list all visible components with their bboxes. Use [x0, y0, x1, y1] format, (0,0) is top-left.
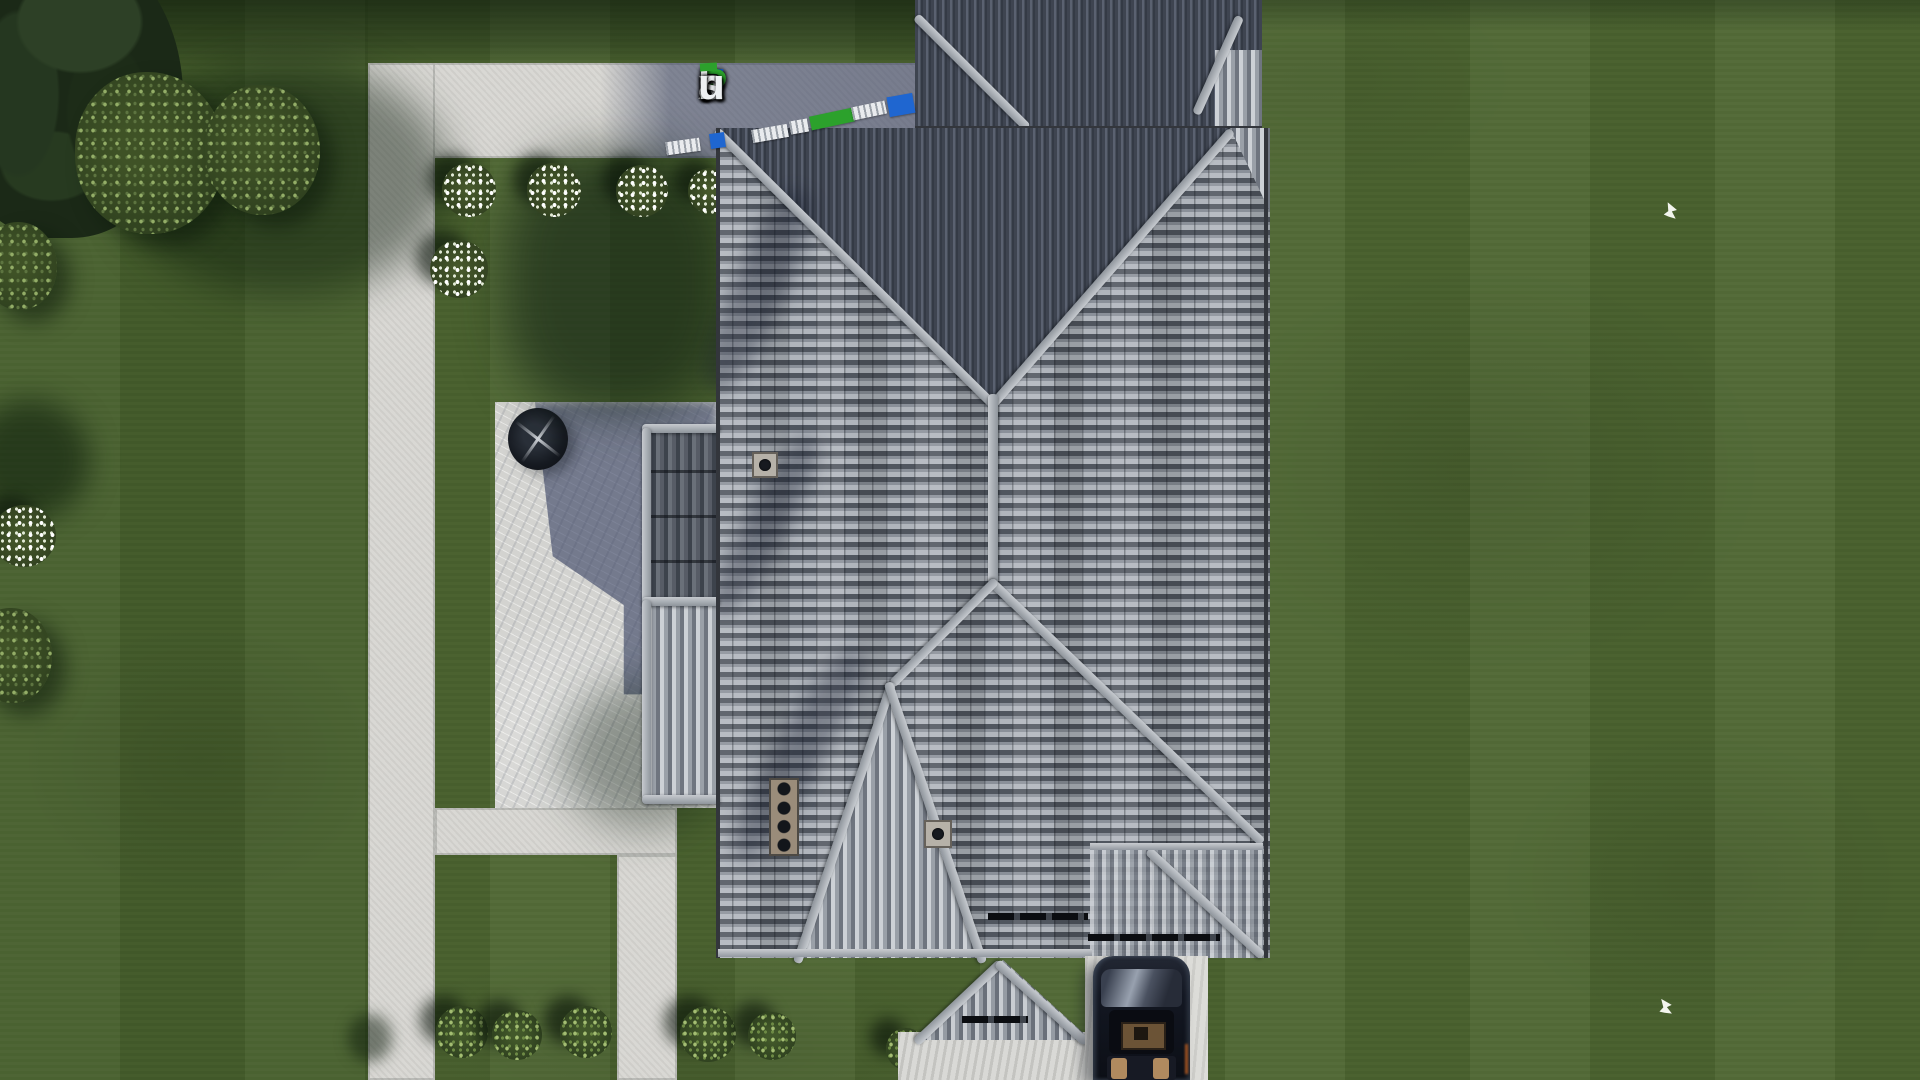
left-wing-ridge [642, 424, 720, 433]
aerial-render: FixPlans.ru [0, 0, 1920, 1080]
garage-roof-tier [1090, 847, 1263, 958]
roof-vent-strip [1088, 934, 1220, 941]
roof-vent-strip [988, 913, 1088, 920]
garage-eave [1090, 843, 1263, 850]
bay-step [648, 560, 718, 563]
car-seat [1153, 1058, 1169, 1079]
green-bush [680, 1006, 736, 1062]
left-wing-ridge [642, 428, 651, 603]
green-bush [560, 1006, 612, 1058]
roof-vent [752, 452, 778, 478]
flower-bush [430, 240, 488, 298]
left-wing-eave [642, 795, 720, 804]
green-bush [492, 1010, 542, 1060]
logo-f-accent [700, 63, 717, 72]
green-bush [748, 1012, 796, 1060]
walkway-leg [617, 855, 677, 1080]
left-wing-lower-bay [648, 600, 718, 800]
main-roof-fascia-right [1264, 128, 1268, 958]
roof-vent-box [769, 778, 799, 856]
shrub-cluster [205, 85, 320, 215]
green-bush [436, 1006, 488, 1058]
left-wing-upper-bay [648, 425, 718, 603]
car-seat [1111, 1058, 1127, 1079]
watermark-stamp [709, 132, 726, 149]
bay-step [648, 470, 718, 473]
flower-bush [616, 165, 668, 217]
flower-bush [527, 163, 581, 217]
main-roof-ridge [988, 394, 998, 584]
main-roof-fascia-left [716, 128, 720, 958]
bush-shadow [348, 1014, 392, 1062]
flower-bush [442, 163, 496, 217]
car-accent-light [1185, 1044, 1188, 1074]
main-roof-north-slope [718, 128, 1270, 418]
roof-vent [924, 820, 952, 848]
fire-table [508, 408, 568, 470]
left-wing-ridge [642, 600, 651, 800]
car-windshield [1101, 969, 1182, 1007]
parked-car [1093, 956, 1190, 1080]
bay-step [648, 515, 718, 518]
car-cabin [1107, 1056, 1176, 1080]
car-sunroof [1121, 1022, 1166, 1050]
left-wing-ridge [642, 597, 720, 606]
shrub-cluster [75, 72, 225, 234]
porch-vent-strip [962, 1016, 1028, 1023]
main-roof-eave [718, 949, 1092, 957]
